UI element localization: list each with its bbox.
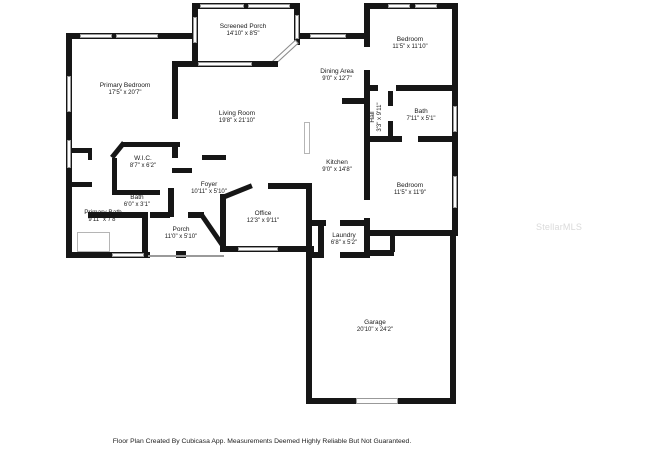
footer-disclaimer: Floor Plan Created By Cubicasa App. Meas… bbox=[0, 438, 524, 445]
wall-segment bbox=[268, 183, 312, 189]
room-dims: 3'3" x 9'11" bbox=[377, 102, 385, 131]
room-dims: 19'8" x 21'10" bbox=[219, 118, 255, 126]
room-label-office: Office 12'3" x 9'11" bbox=[247, 210, 279, 226]
window-marker bbox=[198, 62, 252, 66]
wall-segment bbox=[172, 61, 178, 119]
room-name: Foyer bbox=[191, 181, 227, 189]
wall-segment bbox=[70, 182, 92, 187]
wall-segment-diagonal bbox=[224, 183, 253, 198]
room-label-wic: W.I.C. 8'7" x 6'2" bbox=[130, 155, 156, 171]
window-marker bbox=[310, 34, 346, 38]
room-dims: 10'11" x 5'10" bbox=[191, 189, 227, 197]
room-label-screened-porch: Screened Porch 14'10" x 8'5" bbox=[220, 23, 267, 39]
wall-segment bbox=[88, 148, 92, 160]
window-marker bbox=[67, 140, 71, 168]
wall-segment bbox=[342, 98, 368, 104]
room-dims: 11'0" x 5'10" bbox=[165, 234, 197, 242]
wall-segment bbox=[172, 168, 192, 173]
room-label-bath-right: Bath 7'11" x 5'1" bbox=[406, 108, 435, 124]
room-dims: 6'8" x 5'2" bbox=[331, 240, 357, 248]
room-dims: 9'11" x 7'8" bbox=[84, 217, 122, 225]
window-marker bbox=[453, 176, 457, 208]
room-dims: 6'0" x 3'1" bbox=[124, 202, 150, 210]
wall-segment bbox=[418, 136, 458, 142]
room-name: Bath bbox=[406, 108, 435, 116]
window-marker bbox=[295, 15, 299, 39]
window-marker bbox=[248, 4, 290, 8]
wall-segment bbox=[168, 188, 174, 217]
wall-segment bbox=[172, 142, 178, 158]
window-marker bbox=[200, 4, 244, 8]
room-name: Living Room bbox=[219, 110, 255, 118]
wall-segment bbox=[364, 230, 458, 236]
wall-segment bbox=[390, 236, 395, 252]
kitchen-island bbox=[304, 122, 310, 154]
room-label-bedroom-right: Bedroom 11'5" x 11'9" bbox=[394, 182, 426, 198]
wall-segment bbox=[112, 158, 117, 192]
room-label-kitchen: Kitchen 9'0" x 14'8" bbox=[322, 159, 352, 175]
window-marker bbox=[67, 76, 71, 112]
room-label-dining-area: Dining Area 9'0" x 12'7" bbox=[320, 68, 354, 84]
garage-door bbox=[356, 398, 398, 404]
wall-segment bbox=[306, 220, 326, 226]
wall-segment bbox=[306, 398, 358, 404]
room-dims: 12'3" x 9'11" bbox=[247, 218, 279, 226]
window-marker bbox=[415, 4, 437, 8]
window-marker bbox=[193, 17, 197, 43]
room-label-primary-bedroom: Primary Bedroom 17'5" x 20'7" bbox=[100, 82, 151, 98]
wall-segment bbox=[202, 155, 226, 160]
room-dims: 8'7" x 6'2" bbox=[130, 163, 156, 171]
room-dims: 20'10" x 24'2" bbox=[357, 327, 393, 335]
room-dims: 7'11" x 5'1" bbox=[406, 116, 435, 124]
wall-segment-diagonal bbox=[110, 141, 126, 159]
room-dims: 9'0" x 14'8" bbox=[322, 167, 352, 175]
bathtub bbox=[77, 232, 110, 252]
wall-segment bbox=[364, 218, 370, 236]
room-name: Primary Bath bbox=[84, 209, 122, 217]
room-name: Laundry bbox=[331, 232, 357, 240]
room-name: Bath bbox=[124, 194, 150, 202]
room-dims: 11'5" x 11'10" bbox=[392, 44, 427, 52]
wall-segment bbox=[450, 236, 456, 404]
wall-segment bbox=[306, 183, 312, 404]
window-marker bbox=[80, 34, 112, 38]
wall-segment bbox=[388, 91, 393, 106]
room-name: Bedroom bbox=[392, 36, 427, 44]
room-name: Porch bbox=[165, 226, 197, 234]
room-label-bath-small: Bath 6'0" x 3'1" bbox=[124, 194, 150, 210]
room-label-hall: Hall 3'3" x 9'11" bbox=[369, 102, 385, 131]
wall-segment bbox=[364, 70, 370, 200]
porch-edge-line bbox=[148, 255, 224, 257]
room-label-bedroom-top: Bedroom 11'5" x 11'10" bbox=[392, 36, 427, 52]
window-marker bbox=[238, 247, 278, 251]
wall-segment bbox=[396, 85, 458, 91]
wall-segment bbox=[396, 398, 456, 404]
room-label-living-room: Living Room 19'8" x 21'10" bbox=[219, 110, 255, 126]
wall-segment bbox=[318, 222, 324, 258]
room-name: Kitchen bbox=[322, 159, 352, 167]
watermark: StellarMLS bbox=[536, 222, 582, 232]
window-marker bbox=[388, 4, 410, 8]
room-dims: 14'10" x 8'5" bbox=[220, 31, 267, 39]
room-name: W.I.C. bbox=[130, 155, 156, 163]
room-label-foyer: Foyer 10'11" x 5'10" bbox=[191, 181, 227, 197]
room-label-porch: Porch 11'0" x 5'10" bbox=[165, 226, 197, 242]
room-dims: 11'5" x 11'9" bbox=[394, 190, 426, 198]
wall-segment bbox=[364, 3, 458, 9]
room-name: Bedroom bbox=[394, 182, 426, 190]
room-name: Hall bbox=[369, 102, 377, 131]
room-name: Office bbox=[247, 210, 279, 218]
room-dims: 9'0" x 12'7" bbox=[320, 76, 354, 84]
room-dims: 17'5" x 20'7" bbox=[100, 90, 151, 98]
room-name: Dining Area bbox=[320, 68, 354, 76]
room-name: Screened Porch bbox=[220, 23, 267, 31]
wall-segment bbox=[150, 212, 170, 218]
room-label-laundry: Laundry 6'8" x 5'2" bbox=[331, 232, 357, 248]
room-name: Garage bbox=[357, 319, 393, 327]
window-marker bbox=[116, 34, 158, 38]
window-marker bbox=[112, 253, 144, 257]
floor-plan: Screened Porch 14'10" x 8'5" Bedroom 11'… bbox=[0, 0, 650, 450]
window-marker bbox=[453, 106, 457, 132]
room-label-garage: Garage 20'10" x 24'2" bbox=[357, 319, 393, 335]
room-label-primary-bath: Primary Bath 9'11" x 7'8" bbox=[84, 209, 122, 225]
wall-segment bbox=[364, 39, 370, 47]
wall-segment bbox=[142, 212, 148, 258]
room-name: Primary Bedroom bbox=[100, 82, 151, 90]
